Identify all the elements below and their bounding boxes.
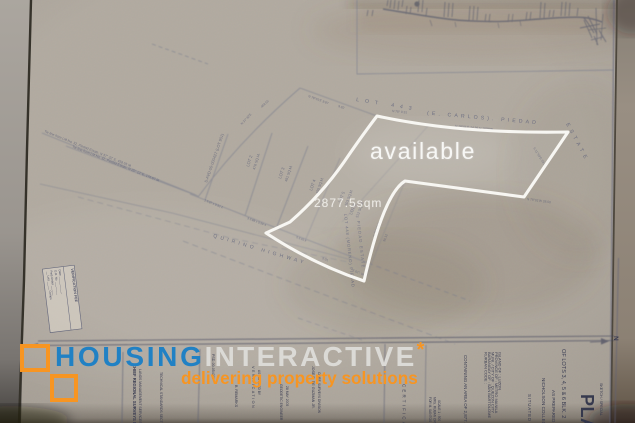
svg-text:SKETCH / SPECIAL: SKETCH / SPECIAL bbox=[599, 383, 603, 416]
svg-text:FOR M. SANTOS: FOR M. SANTOS bbox=[428, 397, 432, 422]
svg-text:CONTAINING AN AREA OF 2,877.5: CONTAINING AN AREA OF 2,877.5 SQ. M. bbox=[463, 355, 468, 423]
svg-text:CHIEF REGIONAL SURVEYS DIV.: CHIEF REGIONAL SURVEYS DIV. bbox=[132, 364, 137, 423]
svg-text:PLAN: PLAN bbox=[577, 394, 597, 423]
svg-text:NICHOLSON COLLEGES SUBD.: NICHOLSON COLLEGES SUBD. bbox=[541, 378, 546, 423]
svg-text:AS PREPARED FOR: AS PREPARED FOR bbox=[551, 390, 556, 423]
svg-text:SITUATED: SITUATED bbox=[527, 394, 532, 422]
svg-text:TECHNICAL STANDARDS SECTION: TECHNICAL STANDARDS SECTION bbox=[159, 372, 163, 423]
svg-text:MRS. RUBAN CRUZ: MRS. RUBAN CRUZ bbox=[433, 397, 437, 423]
svg-text:CERTIFICATION: CERTIFICATION bbox=[402, 384, 407, 423]
svg-text:ISLAND OF : LUZON: ISLAND OF : LUZON bbox=[498, 352, 503, 390]
svg-text:LANDS MANAGEMENT SERVICES: LANDS MANAGEMENT SERVICES bbox=[138, 369, 142, 423]
svg-text:28 MAY 2005: 28 MAY 2005 bbox=[285, 386, 289, 406]
svg-text:SCALE 1 : 500: SCALE 1 : 500 bbox=[437, 400, 441, 421]
svg-text:OF LOTS 3, 4, 5 & 6 BLK. 2: OF LOTS 3, 4, 5 & 6 BLK. 2 bbox=[560, 349, 566, 418]
svg-text:N: N bbox=[612, 336, 619, 341]
svg-text:GEODETIC ENGINEER: GEODETIC ENGINEER bbox=[279, 384, 283, 421]
